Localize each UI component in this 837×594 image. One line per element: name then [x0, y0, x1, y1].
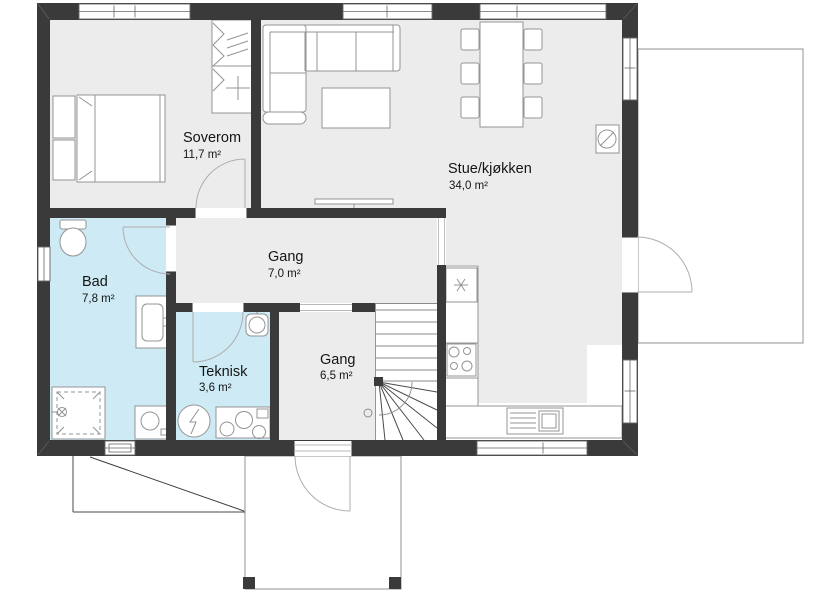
- room-label-teknisk: Teknisk: [199, 364, 248, 380]
- window-stue-1: [343, 4, 432, 19]
- window-bad-bottom: [105, 441, 135, 455]
- stair-newel-post: [374, 377, 383, 386]
- bed: [77, 95, 165, 182]
- room-label-gang: Gang: [268, 249, 303, 265]
- floor-plan-drawing: Soverom 11,7 m² Stue/kjøkken 34,0 m² Gan…: [0, 0, 837, 594]
- room-label-gang2: Gang: [320, 352, 355, 368]
- porch-post: [243, 577, 255, 589]
- room-area-bad: 7,8 m²: [82, 293, 115, 305]
- window-right-top: [623, 38, 637, 100]
- room-area-gang: 7,0 m²: [268, 268, 301, 280]
- window-kitchen: [477, 441, 587, 455]
- coffee-table: [322, 88, 390, 128]
- staircase-floor: [375, 303, 437, 440]
- room-area-teknisk: 3,6 m²: [199, 382, 232, 394]
- room-label-stue-kjokken: Stue/kjøkken: [448, 161, 532, 177]
- ventilation-unit-icon: [216, 407, 270, 439]
- room-area-stue-kjokken: 34,0 m²: [449, 180, 488, 192]
- water-heater-icon: [178, 405, 210, 437]
- window-right-bottom: [623, 360, 637, 423]
- bathroom-sink-icon: [136, 296, 170, 348]
- wardrobe: [212, 20, 252, 113]
- room-gang-floor: [176, 218, 437, 303]
- window-stue-2: [480, 4, 606, 19]
- room-label-bad: Bad: [82, 274, 108, 290]
- toilet-icon: [60, 220, 86, 256]
- utility-sink-icon: [246, 310, 268, 336]
- dining-table: [480, 22, 523, 127]
- window-bad: [38, 247, 50, 281]
- room-label-soverom: Soverom: [183, 130, 241, 146]
- room-area-soverom: 11,7 m²: [183, 149, 221, 161]
- shower-icon: [52, 387, 105, 439]
- room-area-gang2: 6,5 m²: [320, 370, 353, 382]
- terrace-door: [637, 237, 692, 292]
- washing-machine-icon: [135, 406, 170, 439]
- floor-plan: Soverom 11,7 m² Stue/kjøkken 34,0 m² Gan…: [0, 0, 837, 594]
- nightstand: [53, 96, 75, 180]
- porch-post: [389, 577, 401, 589]
- terrace-outline: [638, 49, 803, 343]
- window-soverom: [79, 4, 190, 19]
- entrance-door: [295, 456, 350, 511]
- entrance-porch: [243, 456, 401, 589]
- entrance-door-opening: [294, 441, 352, 456]
- terrace-door-opening: [622, 237, 638, 293]
- fireplace-icon: [596, 125, 619, 153]
- ramp-outline: [73, 456, 245, 512]
